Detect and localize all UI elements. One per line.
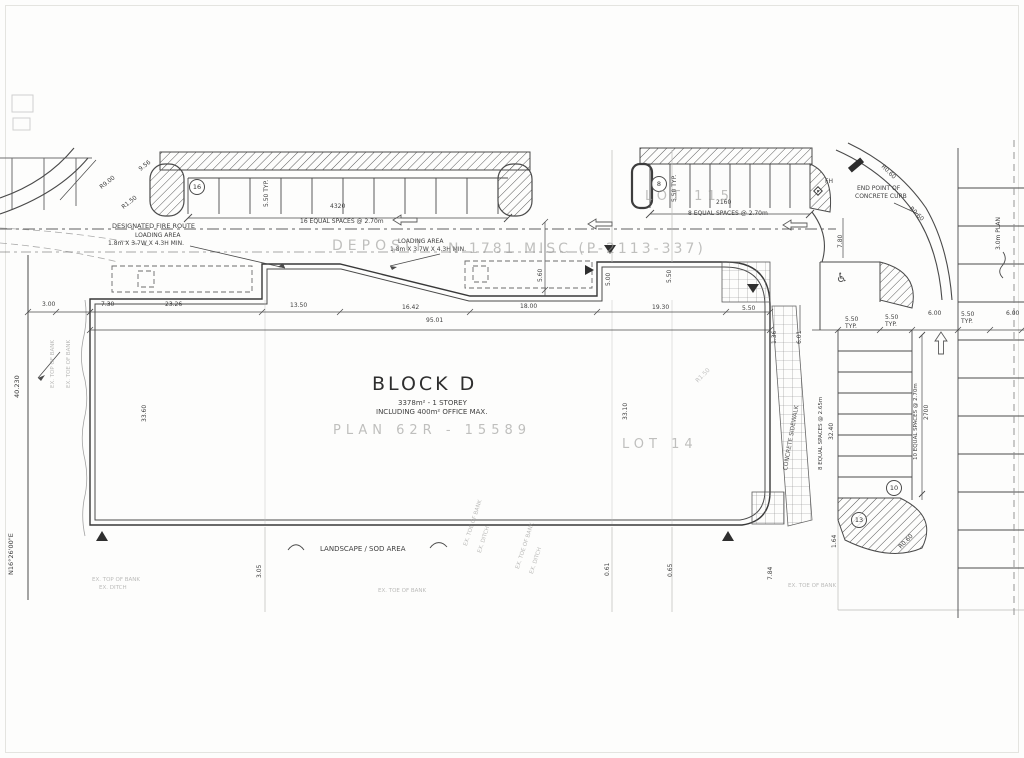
dim-6-00-a: 6.00 xyxy=(928,311,941,318)
typ-a: TYP. xyxy=(845,324,857,331)
dim-8-equal-spaces-b: 8 EQUAL SPACES @ 2.65m xyxy=(818,397,824,470)
dim-16-42: 16.42 xyxy=(402,305,419,312)
existing-fence-line xyxy=(81,300,86,536)
landscape-note: LANDSCAPE / SOD AREA xyxy=(320,545,405,553)
loading-area-note-1: LOADING AREA xyxy=(135,233,180,240)
plan-linework xyxy=(0,0,1024,758)
ex-ditch-bottom: EX. DITCH xyxy=(99,585,127,591)
concrete-pad-bottom-right xyxy=(752,492,784,524)
dim-19-30: 19.30 xyxy=(652,305,669,312)
end-point-note-2: CONCRETE CURB xyxy=(855,194,907,201)
dim-5-60: 5.60 xyxy=(538,269,545,282)
handicap-stall xyxy=(820,262,913,330)
dim-32-40: 32.40 xyxy=(829,423,836,440)
dim-2700: 2700 xyxy=(924,405,931,420)
wheelchair-icon: ♿ xyxy=(836,271,848,286)
dim-0-61: 0.61 xyxy=(605,563,612,576)
parking-block-right xyxy=(838,330,925,508)
building-title: BLOCK D xyxy=(372,374,477,396)
plan-3m-label: 3.0m PLAN xyxy=(996,217,1003,250)
parking-column-far-right xyxy=(958,140,1024,620)
loading-min-note-1: 1.8m X 3.7W X 4.3H MIN. xyxy=(108,241,184,248)
ex-top-of-bank-left: EX. TOP OF BANK xyxy=(50,340,56,388)
ex-toe-of-bank-bottom: EX. TOE OF BANK xyxy=(378,588,426,594)
dim-1-36: 1.36 xyxy=(772,331,779,344)
dim-23-26: 23.26 xyxy=(165,302,182,309)
watermark-deposit: DEPOSIT xyxy=(332,238,428,254)
dim-6-00-b: 6.00 xyxy=(1006,311,1019,318)
fire-hydrant-label: FH xyxy=(825,179,833,186)
scan-artifacts xyxy=(12,95,33,130)
stall-count-13: 13 xyxy=(855,516,863,524)
end-point-note-1: END POINT OF xyxy=(857,186,900,193)
stall-count-10-badge: 10 xyxy=(886,480,902,496)
watermark-plan-ref: N 1781 MISC (P-2113-337) xyxy=(448,241,706,257)
watermark-lot-14: LOT 14 xyxy=(622,438,698,453)
dim-33-10: 33.10 xyxy=(623,403,630,420)
bearing-label: N16°26'00"E xyxy=(8,533,15,575)
dim-5-00: 5.00 xyxy=(606,273,613,286)
stall-count-8: 8 xyxy=(657,180,661,188)
dim-7-30: 7.30 xyxy=(101,302,114,309)
dim-10-equal-spaces: 10 EQUAL SPACES @ 2.70m xyxy=(913,383,919,460)
dim-7-84: 7.84 xyxy=(768,567,775,580)
ex-toe-right: EX. TOE OF BANK xyxy=(788,583,836,589)
dim-3-00: 3.00 xyxy=(42,302,55,309)
dim-18-00: 18.00 xyxy=(520,304,537,311)
parking-row-far-left xyxy=(0,158,92,210)
stall-count-16-badge: 16 xyxy=(189,179,205,195)
fire-route-note: DESIGNATED FIRE ROUTE xyxy=(112,223,195,230)
typ-b: TYP. xyxy=(885,322,897,329)
dim-4320: 4320 xyxy=(330,204,345,211)
dim-13-50: 13.50 xyxy=(290,303,307,310)
left-boundary xyxy=(25,255,93,600)
building-office-note: INCLUDING 400m² OFFICE MAX. xyxy=(376,408,487,416)
right-dim-row xyxy=(800,305,1024,333)
site-plan-drawing: 9.56 R9.00 R1.50 16 5.50 TYP. 4320 16 EQ… xyxy=(0,0,1024,758)
curb-fan-bottom-right xyxy=(838,498,927,553)
stall-depth-typ-left: 5.50 TYP. xyxy=(264,180,271,207)
dim-40-230: 40.230 xyxy=(14,375,21,398)
dim-2160: 2160 xyxy=(716,200,731,207)
dim-8-equal-spaces: 8 EQUAL SPACES @ 2.70m xyxy=(688,211,768,218)
dim-1-64: 1.64 xyxy=(832,535,839,548)
parking-row-left-stalls xyxy=(184,178,512,222)
loading-truck-outlines xyxy=(112,261,592,292)
dim-95-01: 95.01 xyxy=(426,318,443,325)
ex-top-of-bank-bottom: EX. TOP OF BANK xyxy=(92,577,140,583)
traffic-arrows xyxy=(393,215,947,354)
plan-stamp: PLAN 62R - 15589 xyxy=(333,424,531,439)
dim-0-65: 0.65 xyxy=(668,564,675,577)
stall-count-13-badge: 13 xyxy=(851,512,867,528)
dim-5-50-top: 5.50 xyxy=(742,306,755,313)
stall-count-10: 10 xyxy=(890,484,898,492)
concrete-pad-top-right xyxy=(722,262,770,302)
dim-7-80: 7.80 xyxy=(838,235,845,248)
ex-toe-of-bank-left: EX. TOE OF BANK xyxy=(66,340,72,388)
building-area-storey: 3378m² - 1 STOREY xyxy=(398,399,467,407)
dim-16-equal-spaces: 16 EQUAL SPACES @ 2.70m xyxy=(300,219,384,226)
typ-c: TYP. xyxy=(961,319,973,326)
dim-5-50-notch: 5.50 xyxy=(667,270,674,283)
dim-3-05: 3.05 xyxy=(257,565,264,578)
dim-33-60: 33.60 xyxy=(142,405,149,422)
dim-6-01: 6.01 xyxy=(797,331,804,344)
stall-count-16: 16 xyxy=(193,183,201,191)
